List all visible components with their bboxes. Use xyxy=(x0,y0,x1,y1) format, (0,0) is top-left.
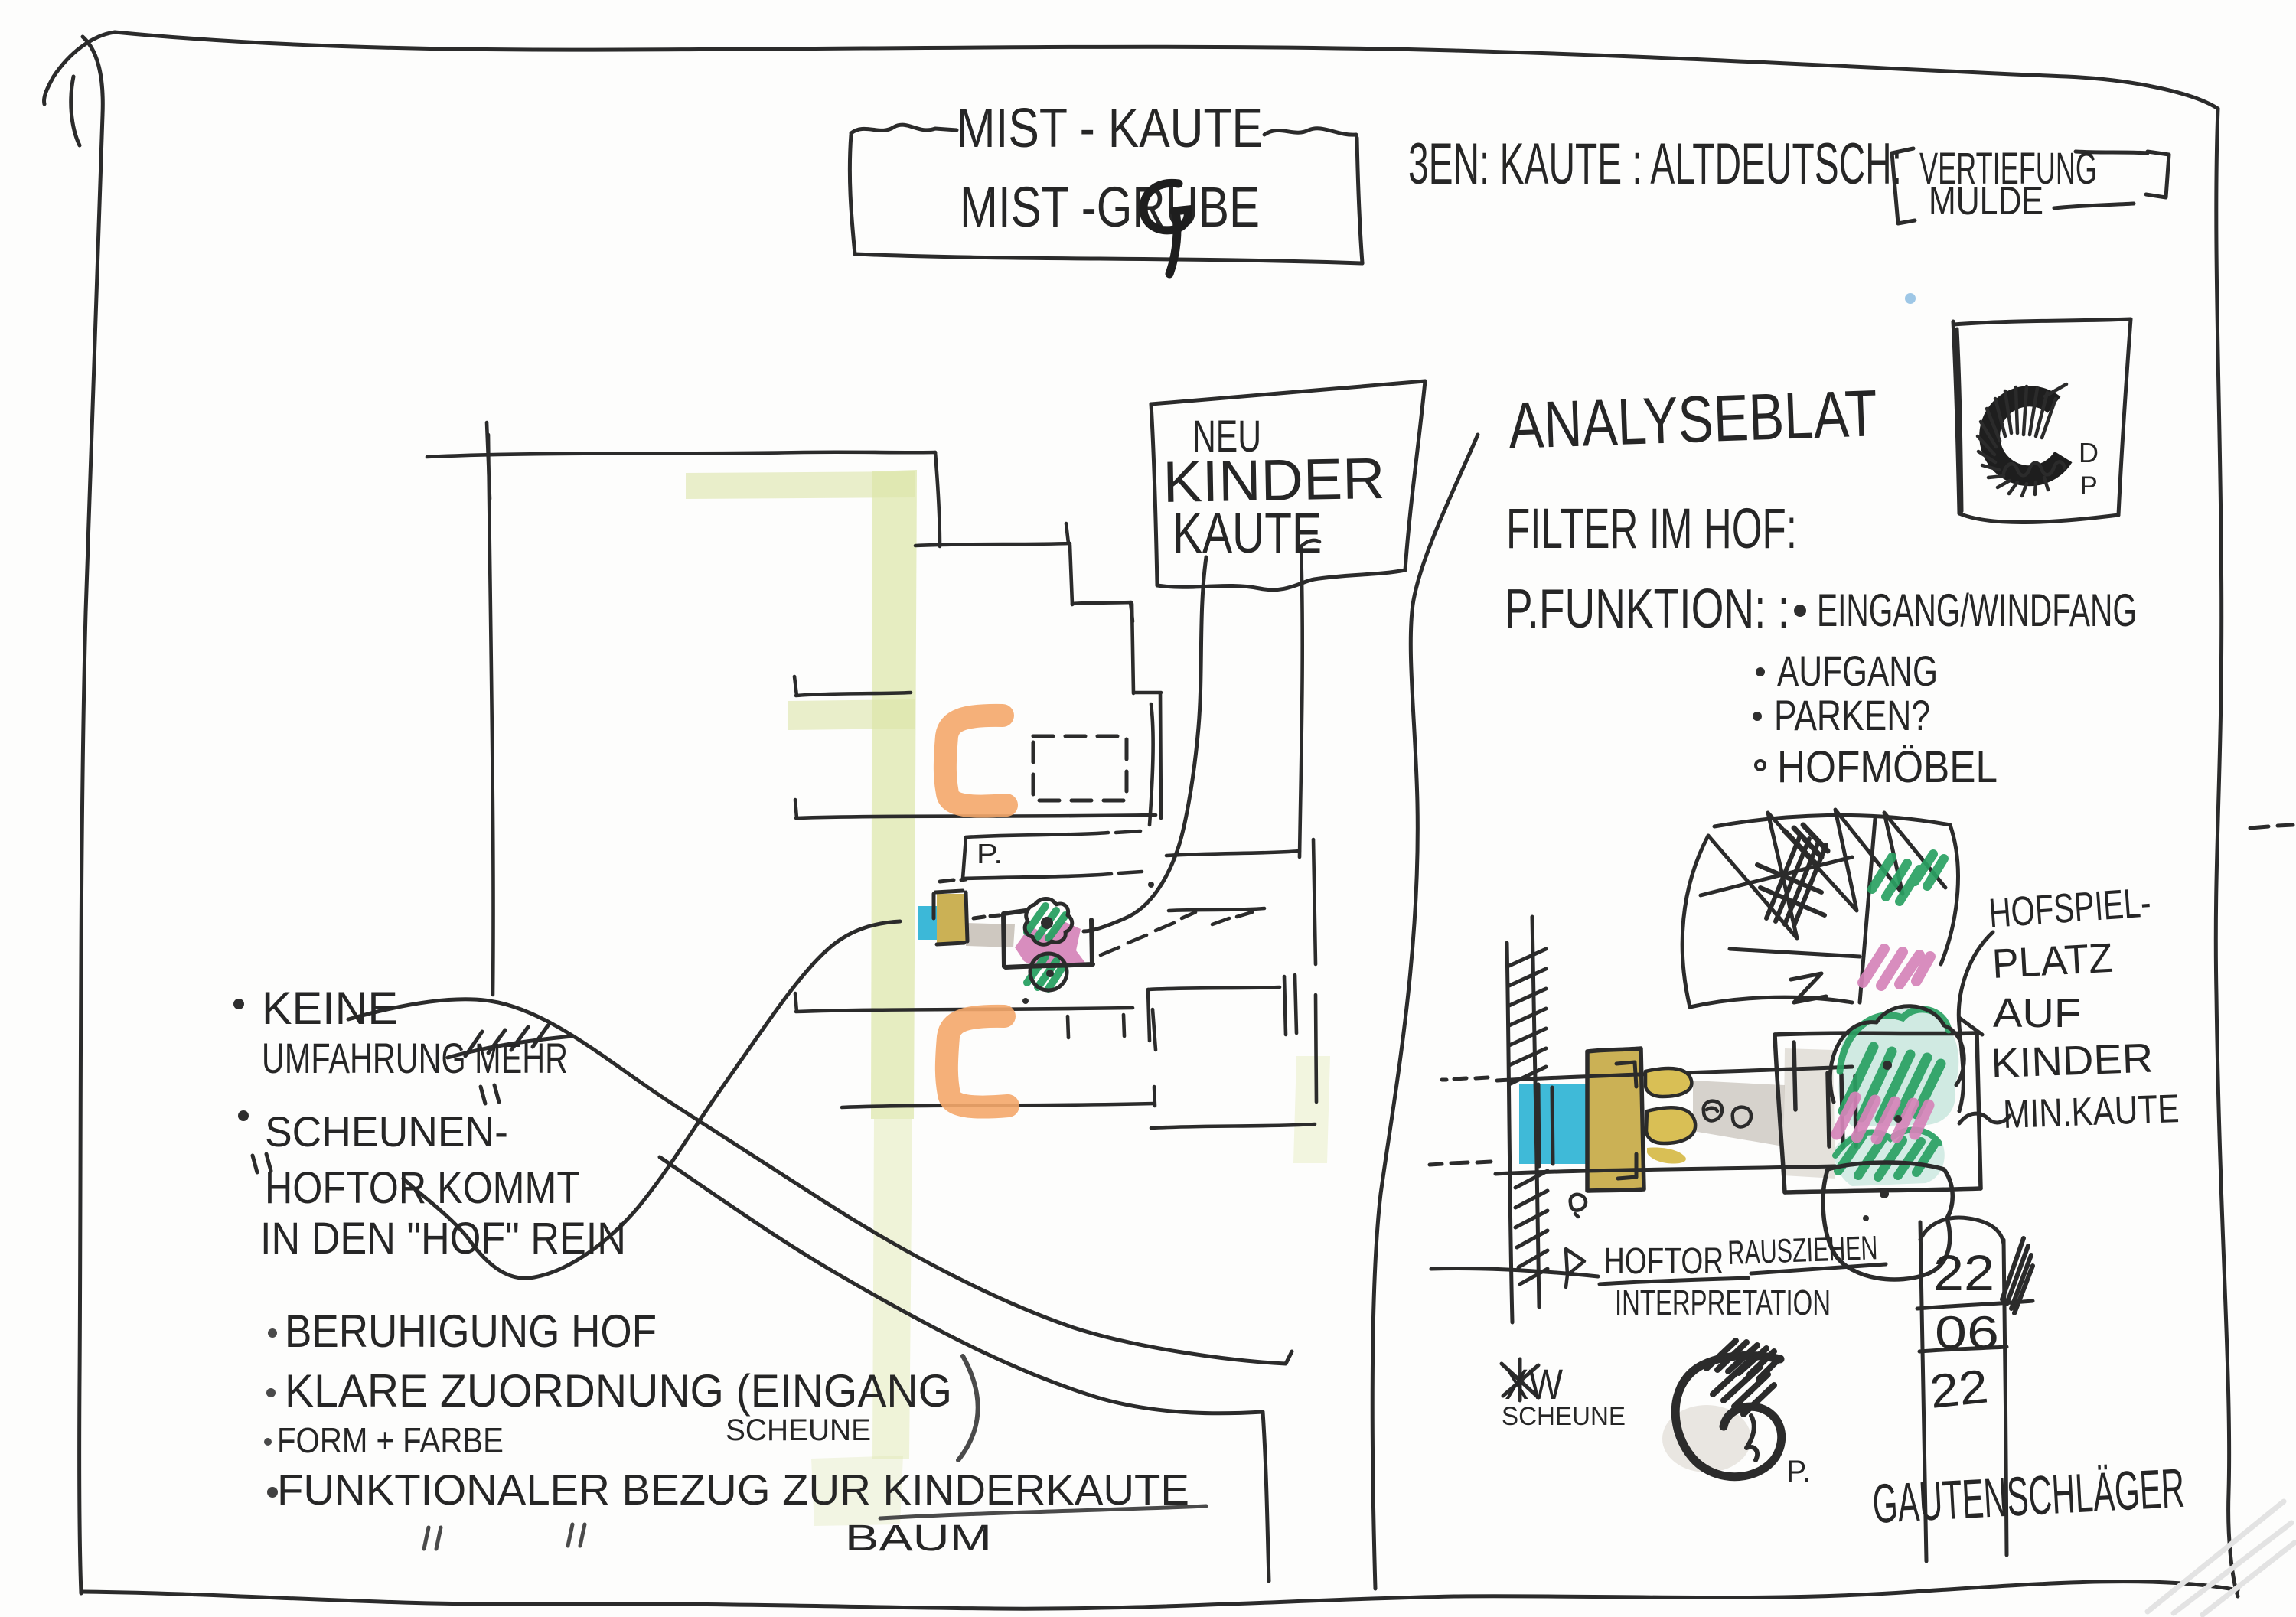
svg-text:KEINE: KEINE xyxy=(262,983,398,1034)
svg-text:FILTER IM HOF:: FILTER IM HOF: xyxy=(1506,497,1797,560)
svg-text:HOFMÖBEL: HOFMÖBEL xyxy=(1777,742,1998,792)
svg-text:P.: P. xyxy=(1786,1455,1811,1488)
svg-text:BERUHIGUNG HOF: BERUHIGUNG HOF xyxy=(285,1306,657,1357)
svg-text:HOFTOR: HOFTOR xyxy=(1604,1241,1724,1282)
svg-text:D: D xyxy=(2079,437,2099,468)
svg-text:ANALYSEBLAT: ANALYSEBLAT xyxy=(1507,377,1878,463)
svg-text:MIN.KAUTE: MIN.KAUTE xyxy=(2002,1087,2180,1137)
svg-text:FUNKTIONALER BEZUG ZUR KINDERK: FUNKTIONALER BEZUG ZUR KINDERKAUTE xyxy=(277,1465,1189,1514)
svg-text:SCHEUNEN-: SCHEUNEN- xyxy=(265,1107,508,1156)
svg-text:FORM + FARBE: FORM + FARBE xyxy=(277,1420,504,1460)
svg-text:SCHEUNE: SCHEUNE xyxy=(726,1413,871,1447)
svg-text:06: 06 xyxy=(1935,1307,1999,1358)
svg-text:PLATZ: PLATZ xyxy=(1991,935,2114,987)
svg-text:P.: P. xyxy=(977,838,1003,869)
svg-text:HOFTOR KOMMT: HOFTOR KOMMT xyxy=(265,1163,580,1213)
svg-text:UMFAHRUNG MEHR: UMFAHRUNG MEHR xyxy=(262,1034,568,1082)
svg-text:P.FUNKTION: :: P.FUNKTION: : xyxy=(1505,579,1789,640)
svg-text:XW: XW xyxy=(1505,1360,1563,1408)
svg-text:KINDER: KINDER xyxy=(1990,1035,2154,1087)
svg-text:MULDE: MULDE xyxy=(1929,179,2043,223)
svg-text:KAUTE: KAUTE xyxy=(1172,501,1322,565)
svg-text:PARKEN?: PARKEN? xyxy=(1774,691,1930,739)
svg-text:SCHEUNE: SCHEUNE xyxy=(1502,1402,1626,1431)
svg-text:IN DEN "HOF" REIN: IN DEN "HOF" REIN xyxy=(260,1214,626,1263)
svg-text:KLARE ZUORDNUNG (EINGANG: KLARE ZUORDNUNG (EINGANG xyxy=(285,1365,952,1417)
svg-text:3EN: KAUTE : ALTDEUTSCH:: 3EN: KAUTE : ALTDEUTSCH: xyxy=(1408,132,1902,197)
svg-text:BAUM: BAUM xyxy=(845,1518,992,1559)
svg-text:AUF: AUF xyxy=(1993,990,2081,1036)
svg-text:AUFGANG: AUFGANG xyxy=(1777,647,1938,695)
svg-text:RAUSZIEHEN: RAUSZIEHEN xyxy=(1727,1229,1879,1272)
svg-text:P: P xyxy=(2080,471,2098,500)
svg-text:EINGANG/WINDFANG: EINGANG/WINDFANG xyxy=(1817,585,2137,636)
svg-text:INTERPRETATION: INTERPRETATION xyxy=(1615,1283,1831,1322)
svg-text:MIST - KAUTE: MIST - KAUTE xyxy=(957,98,1263,159)
svg-text:MIST -GRUBE: MIST -GRUBE xyxy=(960,175,1260,239)
svg-text:22: 22 xyxy=(1927,1360,1991,1419)
svg-text:22: 22 xyxy=(1933,1244,1994,1301)
